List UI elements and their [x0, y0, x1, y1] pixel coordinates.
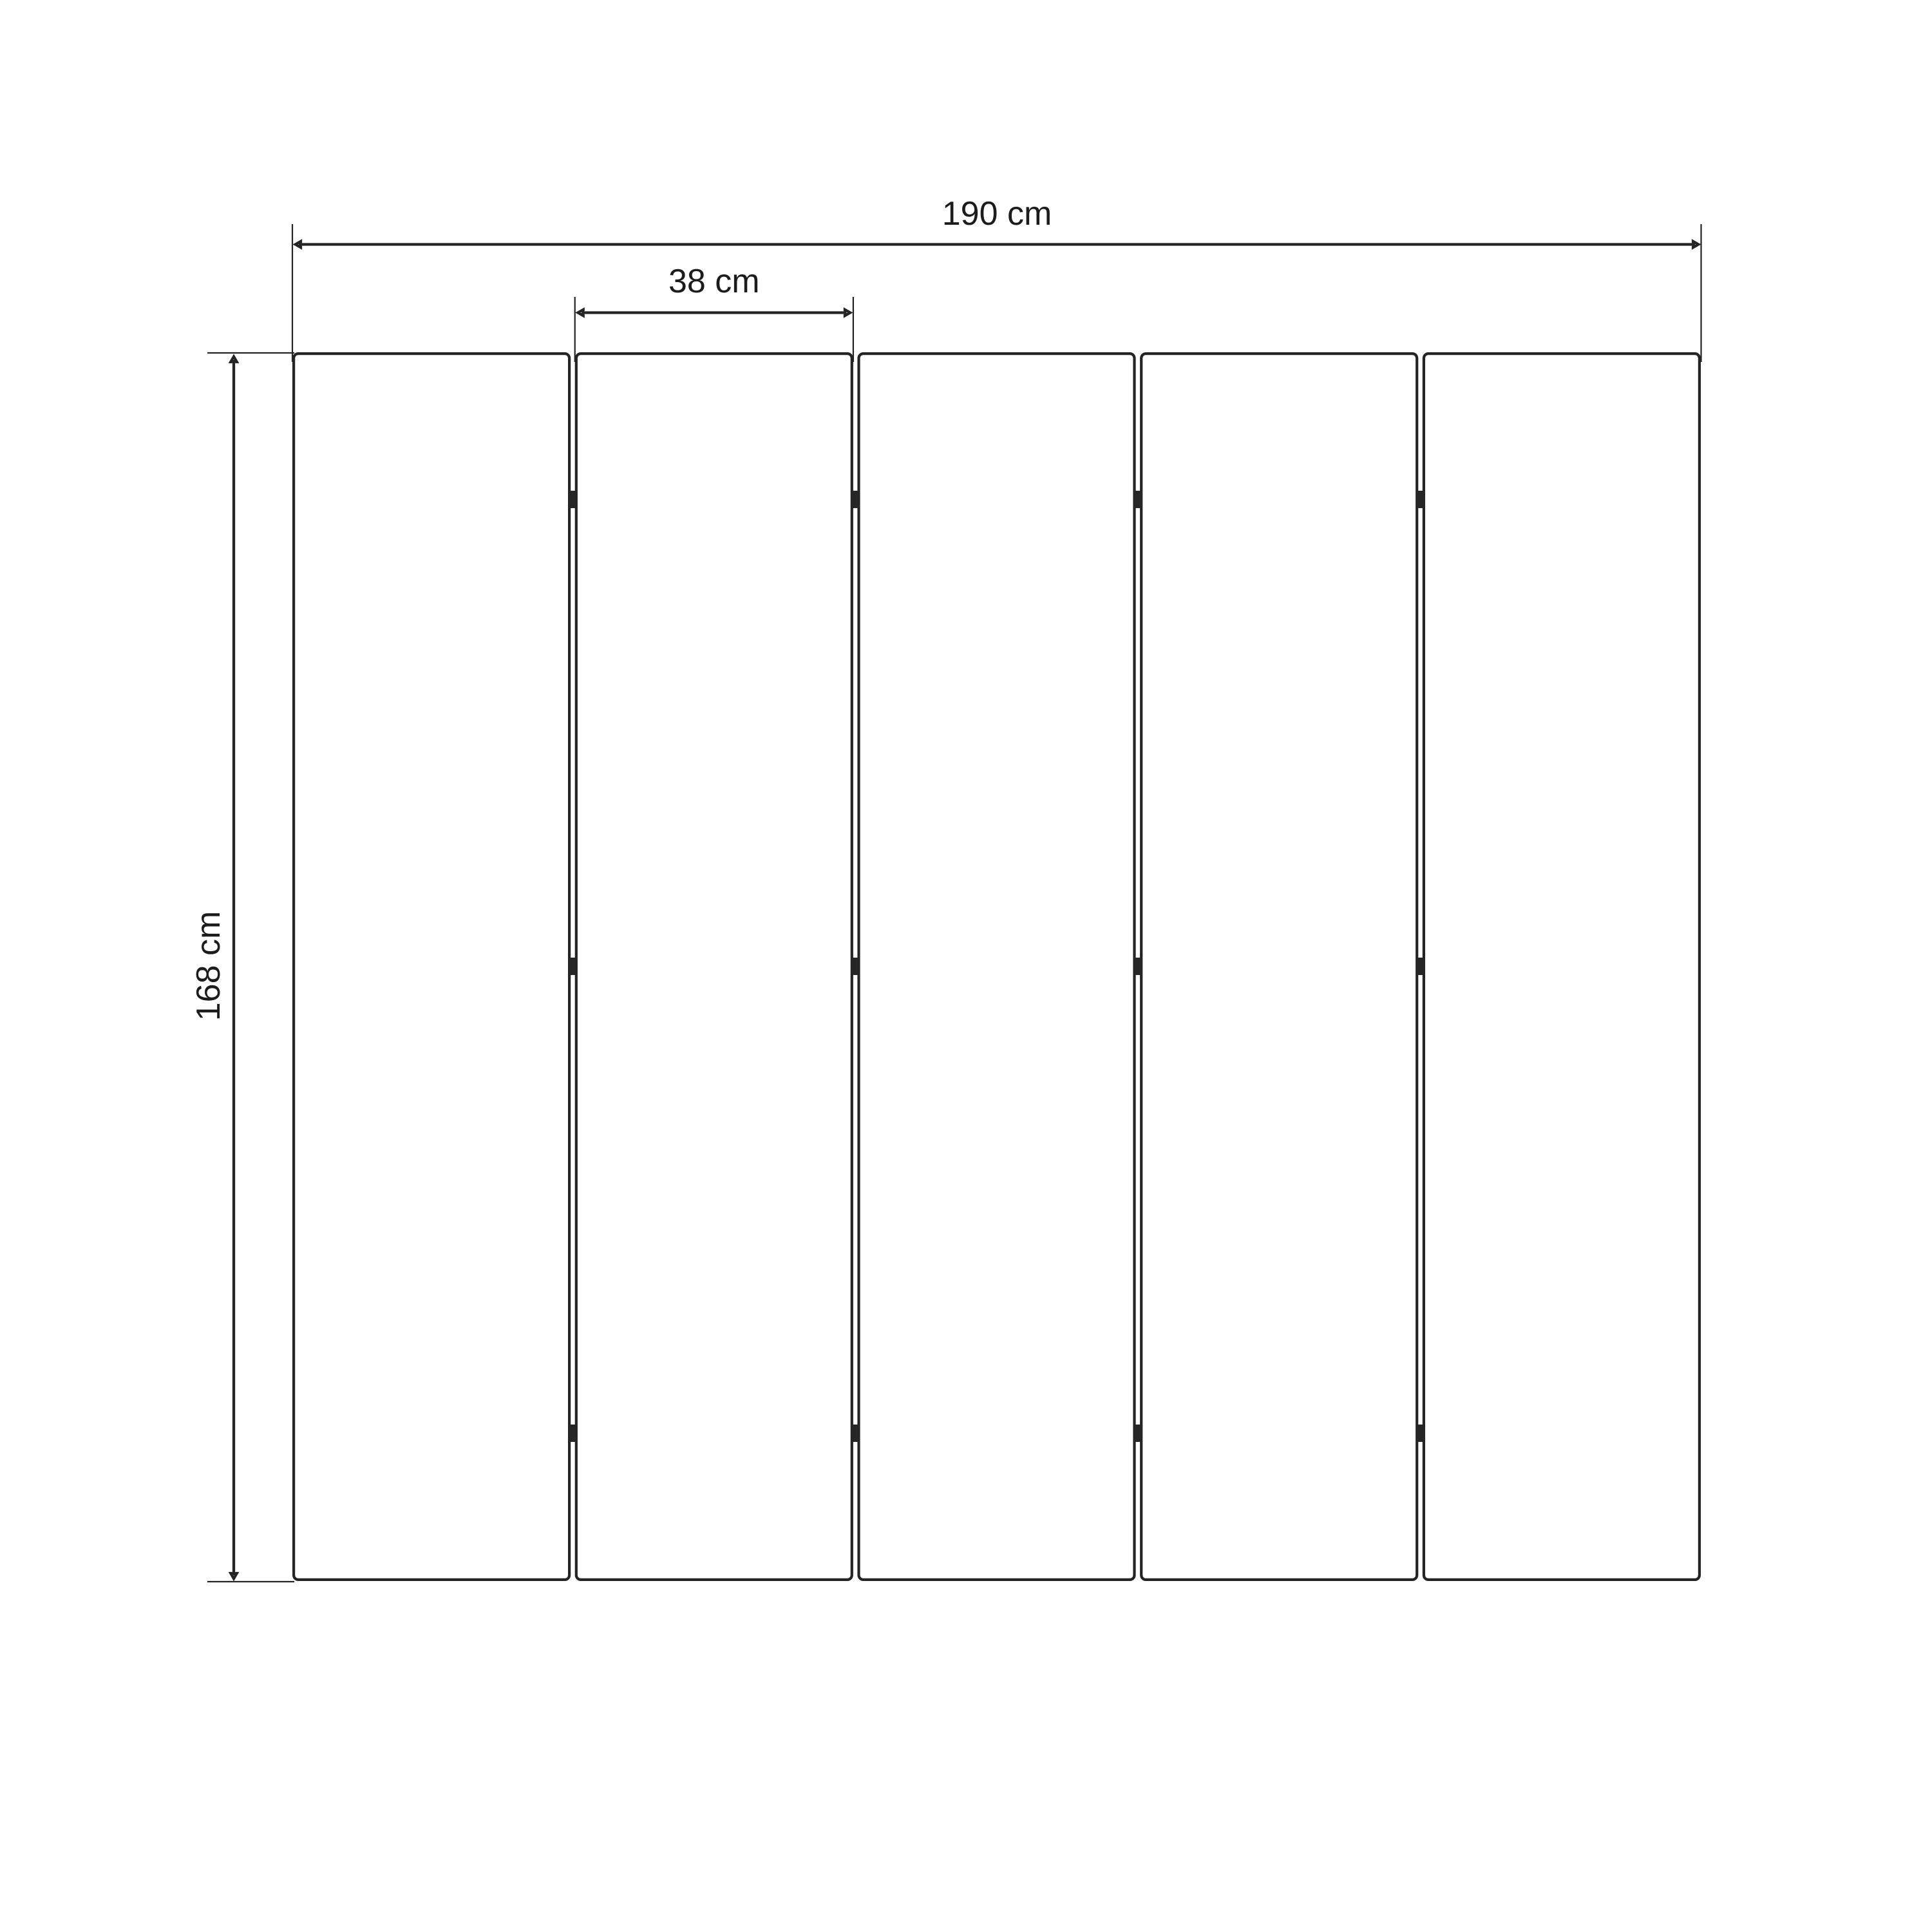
svg-text:38 cm: 38 cm — [668, 263, 760, 300]
svg-text:190 cm: 190 cm — [942, 195, 1052, 232]
svg-text:168 cm: 168 cm — [190, 911, 227, 1021]
